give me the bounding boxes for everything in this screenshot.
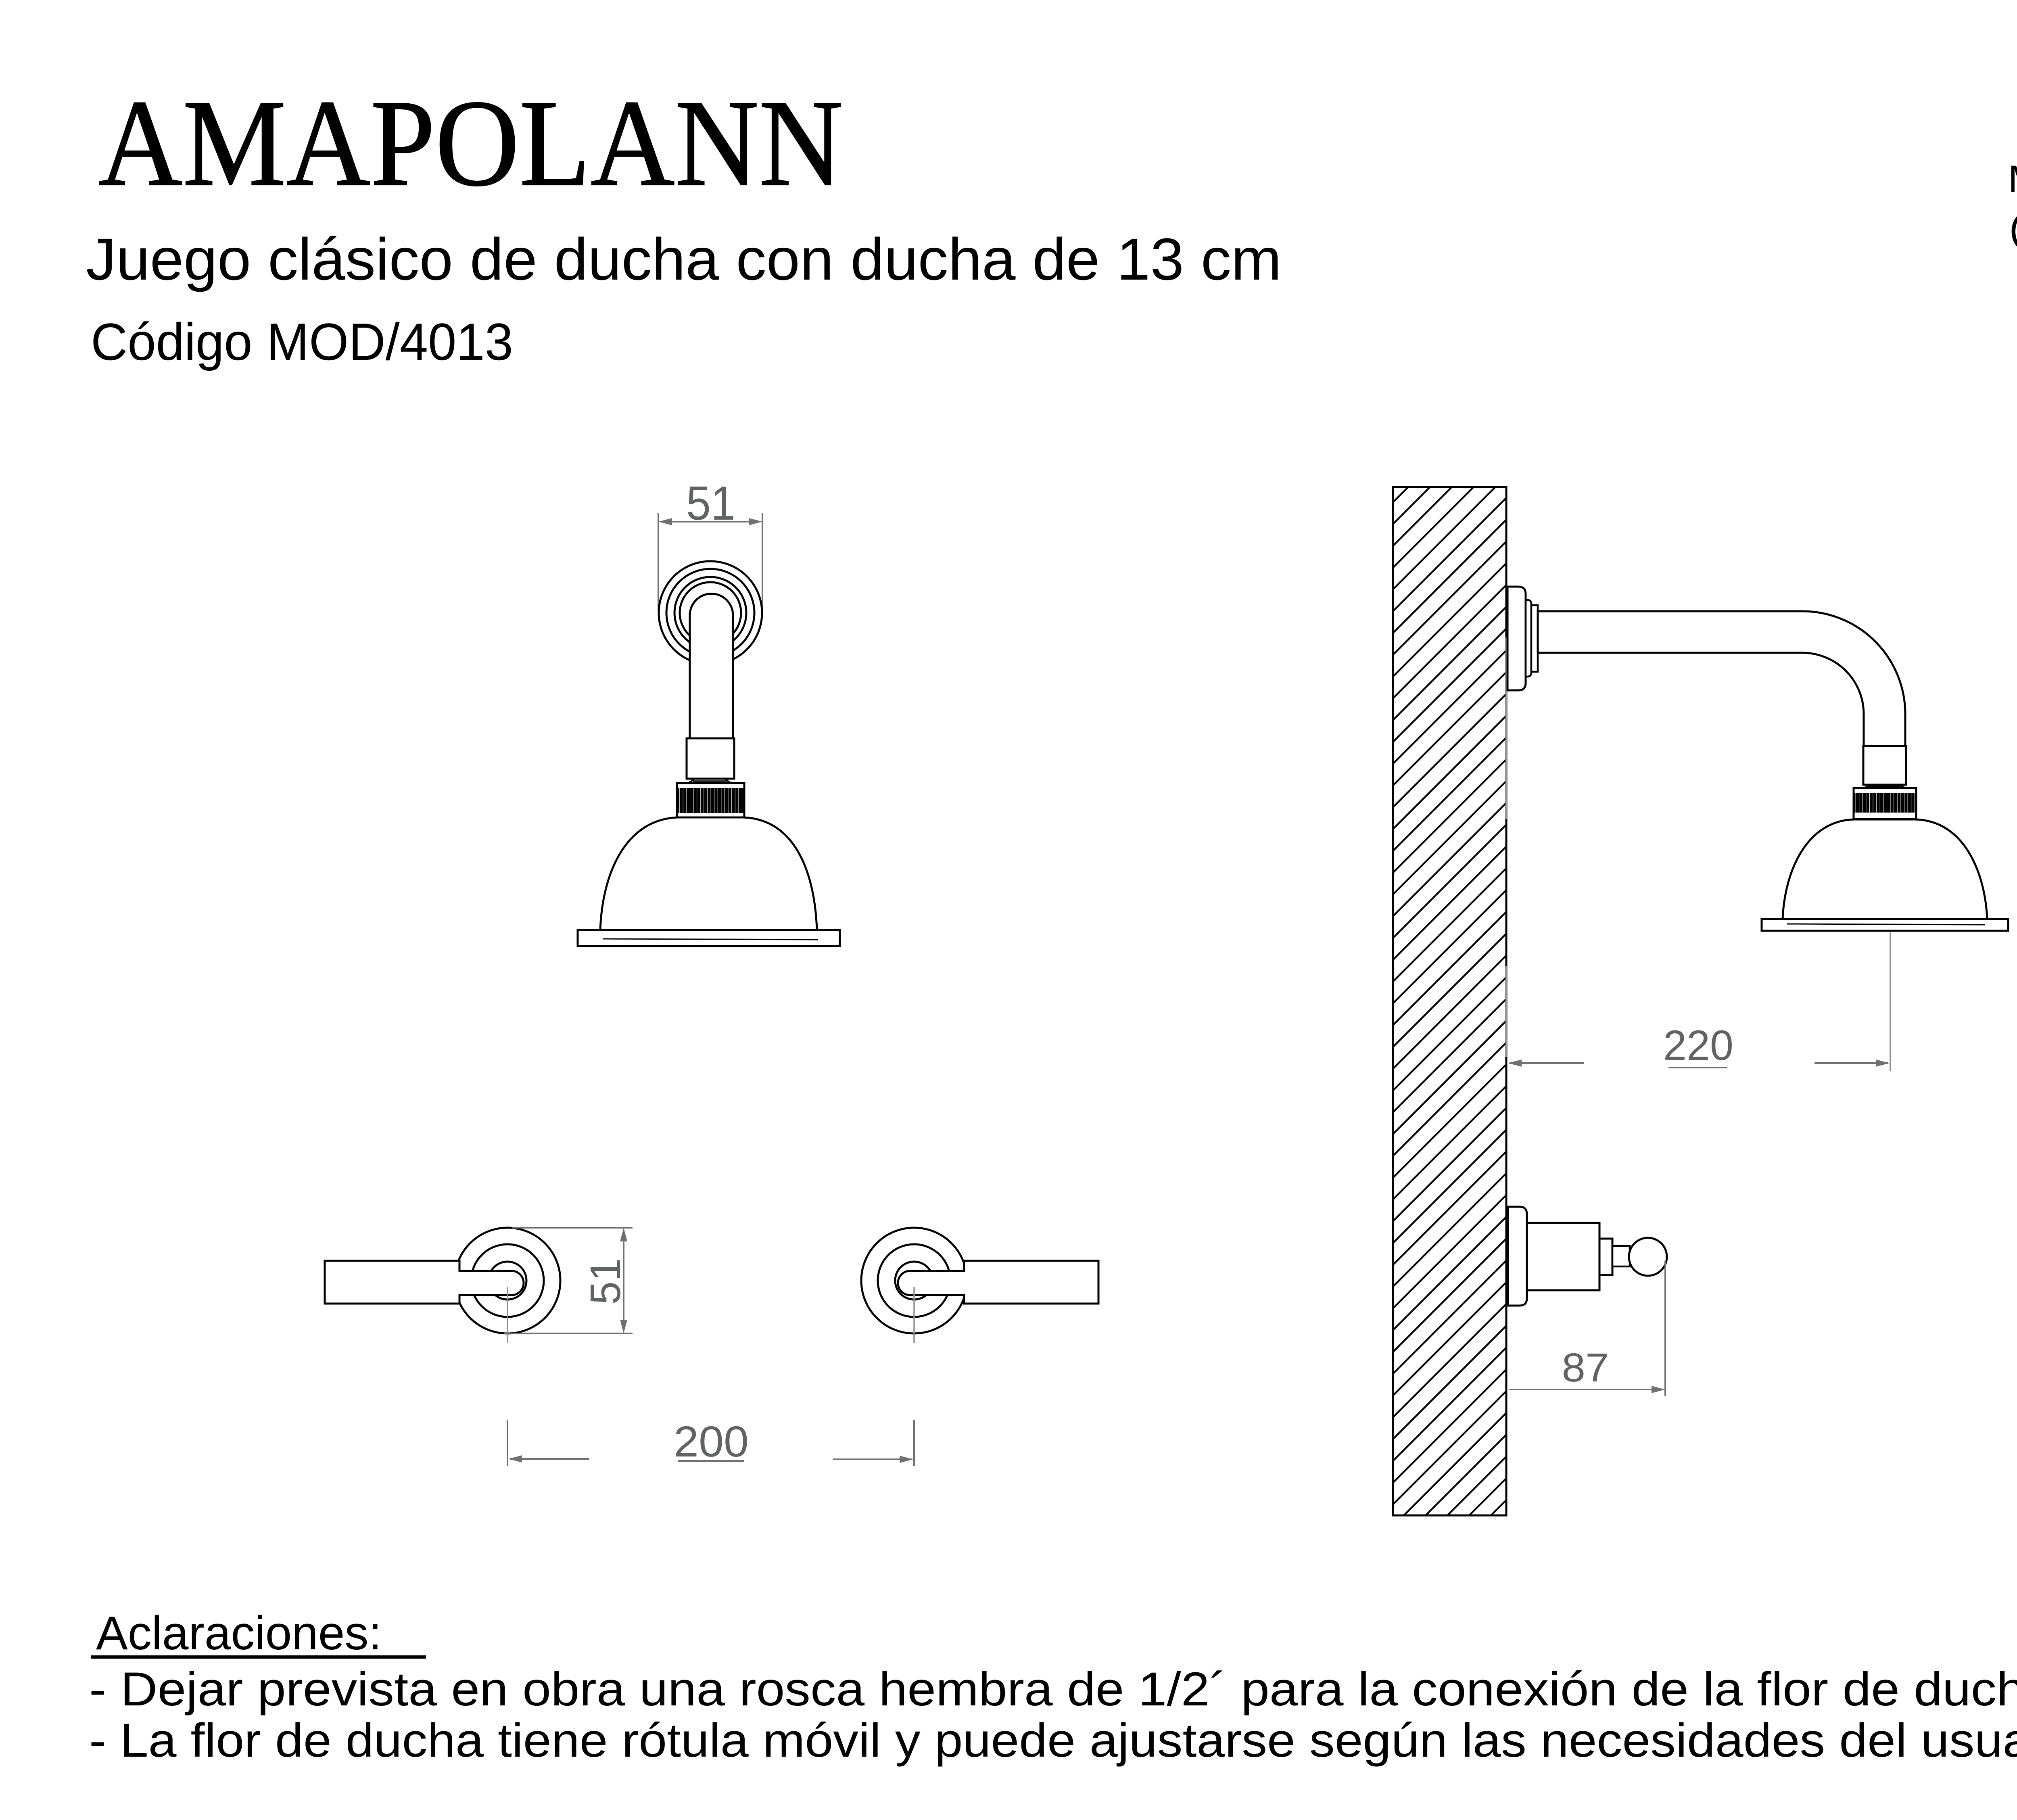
svg-text:220: 220 [1663, 1022, 1733, 1069]
svg-text:AMAPOLANN: AMAPOLANN [98, 74, 843, 212]
svg-text:87: 87 [1562, 1345, 1609, 1390]
svg-text:- La flor de ducha tiene rótul: - La flor de ducha tiene rótula móvil y … [89, 1714, 2017, 1767]
svg-text:Aclaraciones:: Aclaraciones: [96, 1607, 382, 1660]
svg-text:Código MOD/4013: Código MOD/4013 [91, 312, 513, 371]
svg-text:- Dejar prevista en obra una r: - Dejar prevista en obra una rosca hembr… [89, 1663, 2017, 1716]
svg-text:200: 200 [674, 1417, 749, 1466]
svg-text:(milimetros): (milimetros) [2009, 207, 2017, 250]
svg-text:51: 51 [582, 1258, 629, 1305]
svg-text:Juego clásico de ducha con duc: Juego clásico de ducha con ducha de 13 c… [86, 226, 1282, 293]
svg-text:Medidas en mm.: Medidas en mm. [2008, 158, 2017, 201]
